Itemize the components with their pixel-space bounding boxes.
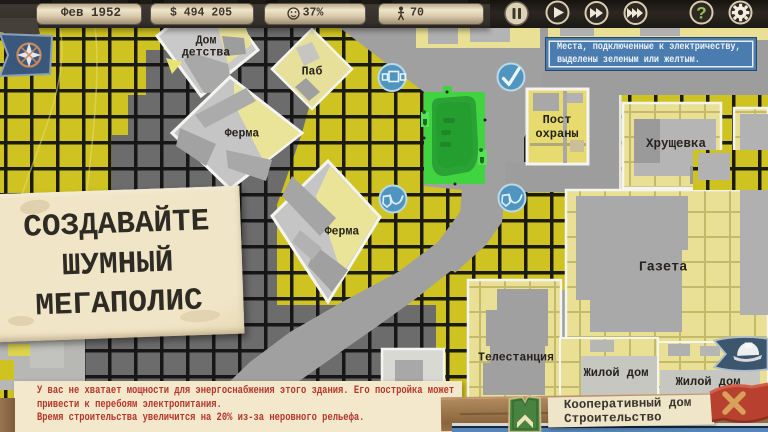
svg-text:?: ? — [696, 4, 706, 23]
